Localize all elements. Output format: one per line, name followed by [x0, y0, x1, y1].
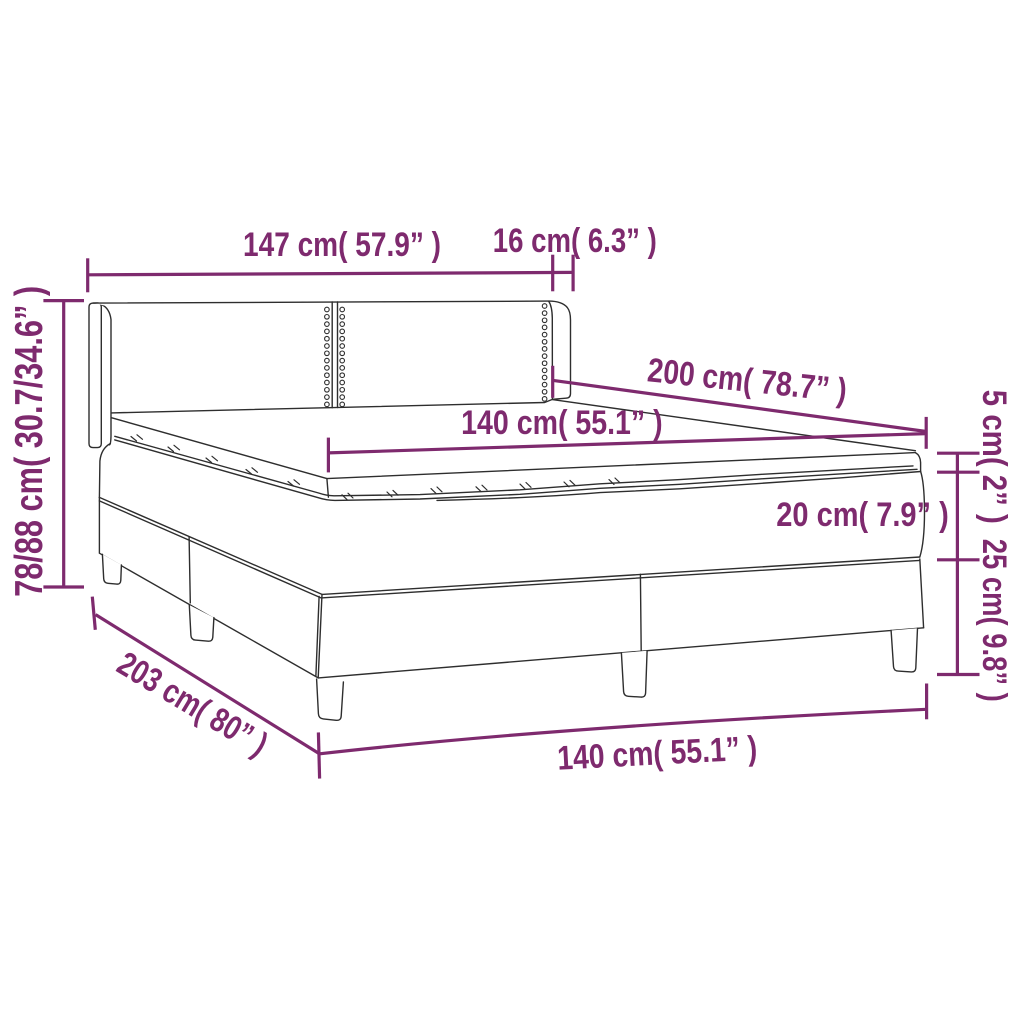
- svg-text:20 cm( 7.9” ): 20 cm( 7.9” ): [776, 496, 949, 534]
- svg-text:16 cm( 6.3” ): 16 cm( 6.3” ): [493, 222, 657, 260]
- svg-text:5 cm( 2” ): 5 cm( 2” ): [975, 390, 1013, 524]
- svg-text:25 cm( 9.8” ): 25 cm( 9.8” ): [975, 539, 1013, 702]
- svg-text:147 cm( 57.9” ): 147 cm( 57.9” ): [243, 226, 441, 264]
- svg-text:140 cm( 55.1” ): 140 cm( 55.1” ): [461, 404, 663, 442]
- svg-text:78/88 cm( 30.7/34.6” ): 78/88 cm( 30.7/34.6” ): [8, 286, 51, 597]
